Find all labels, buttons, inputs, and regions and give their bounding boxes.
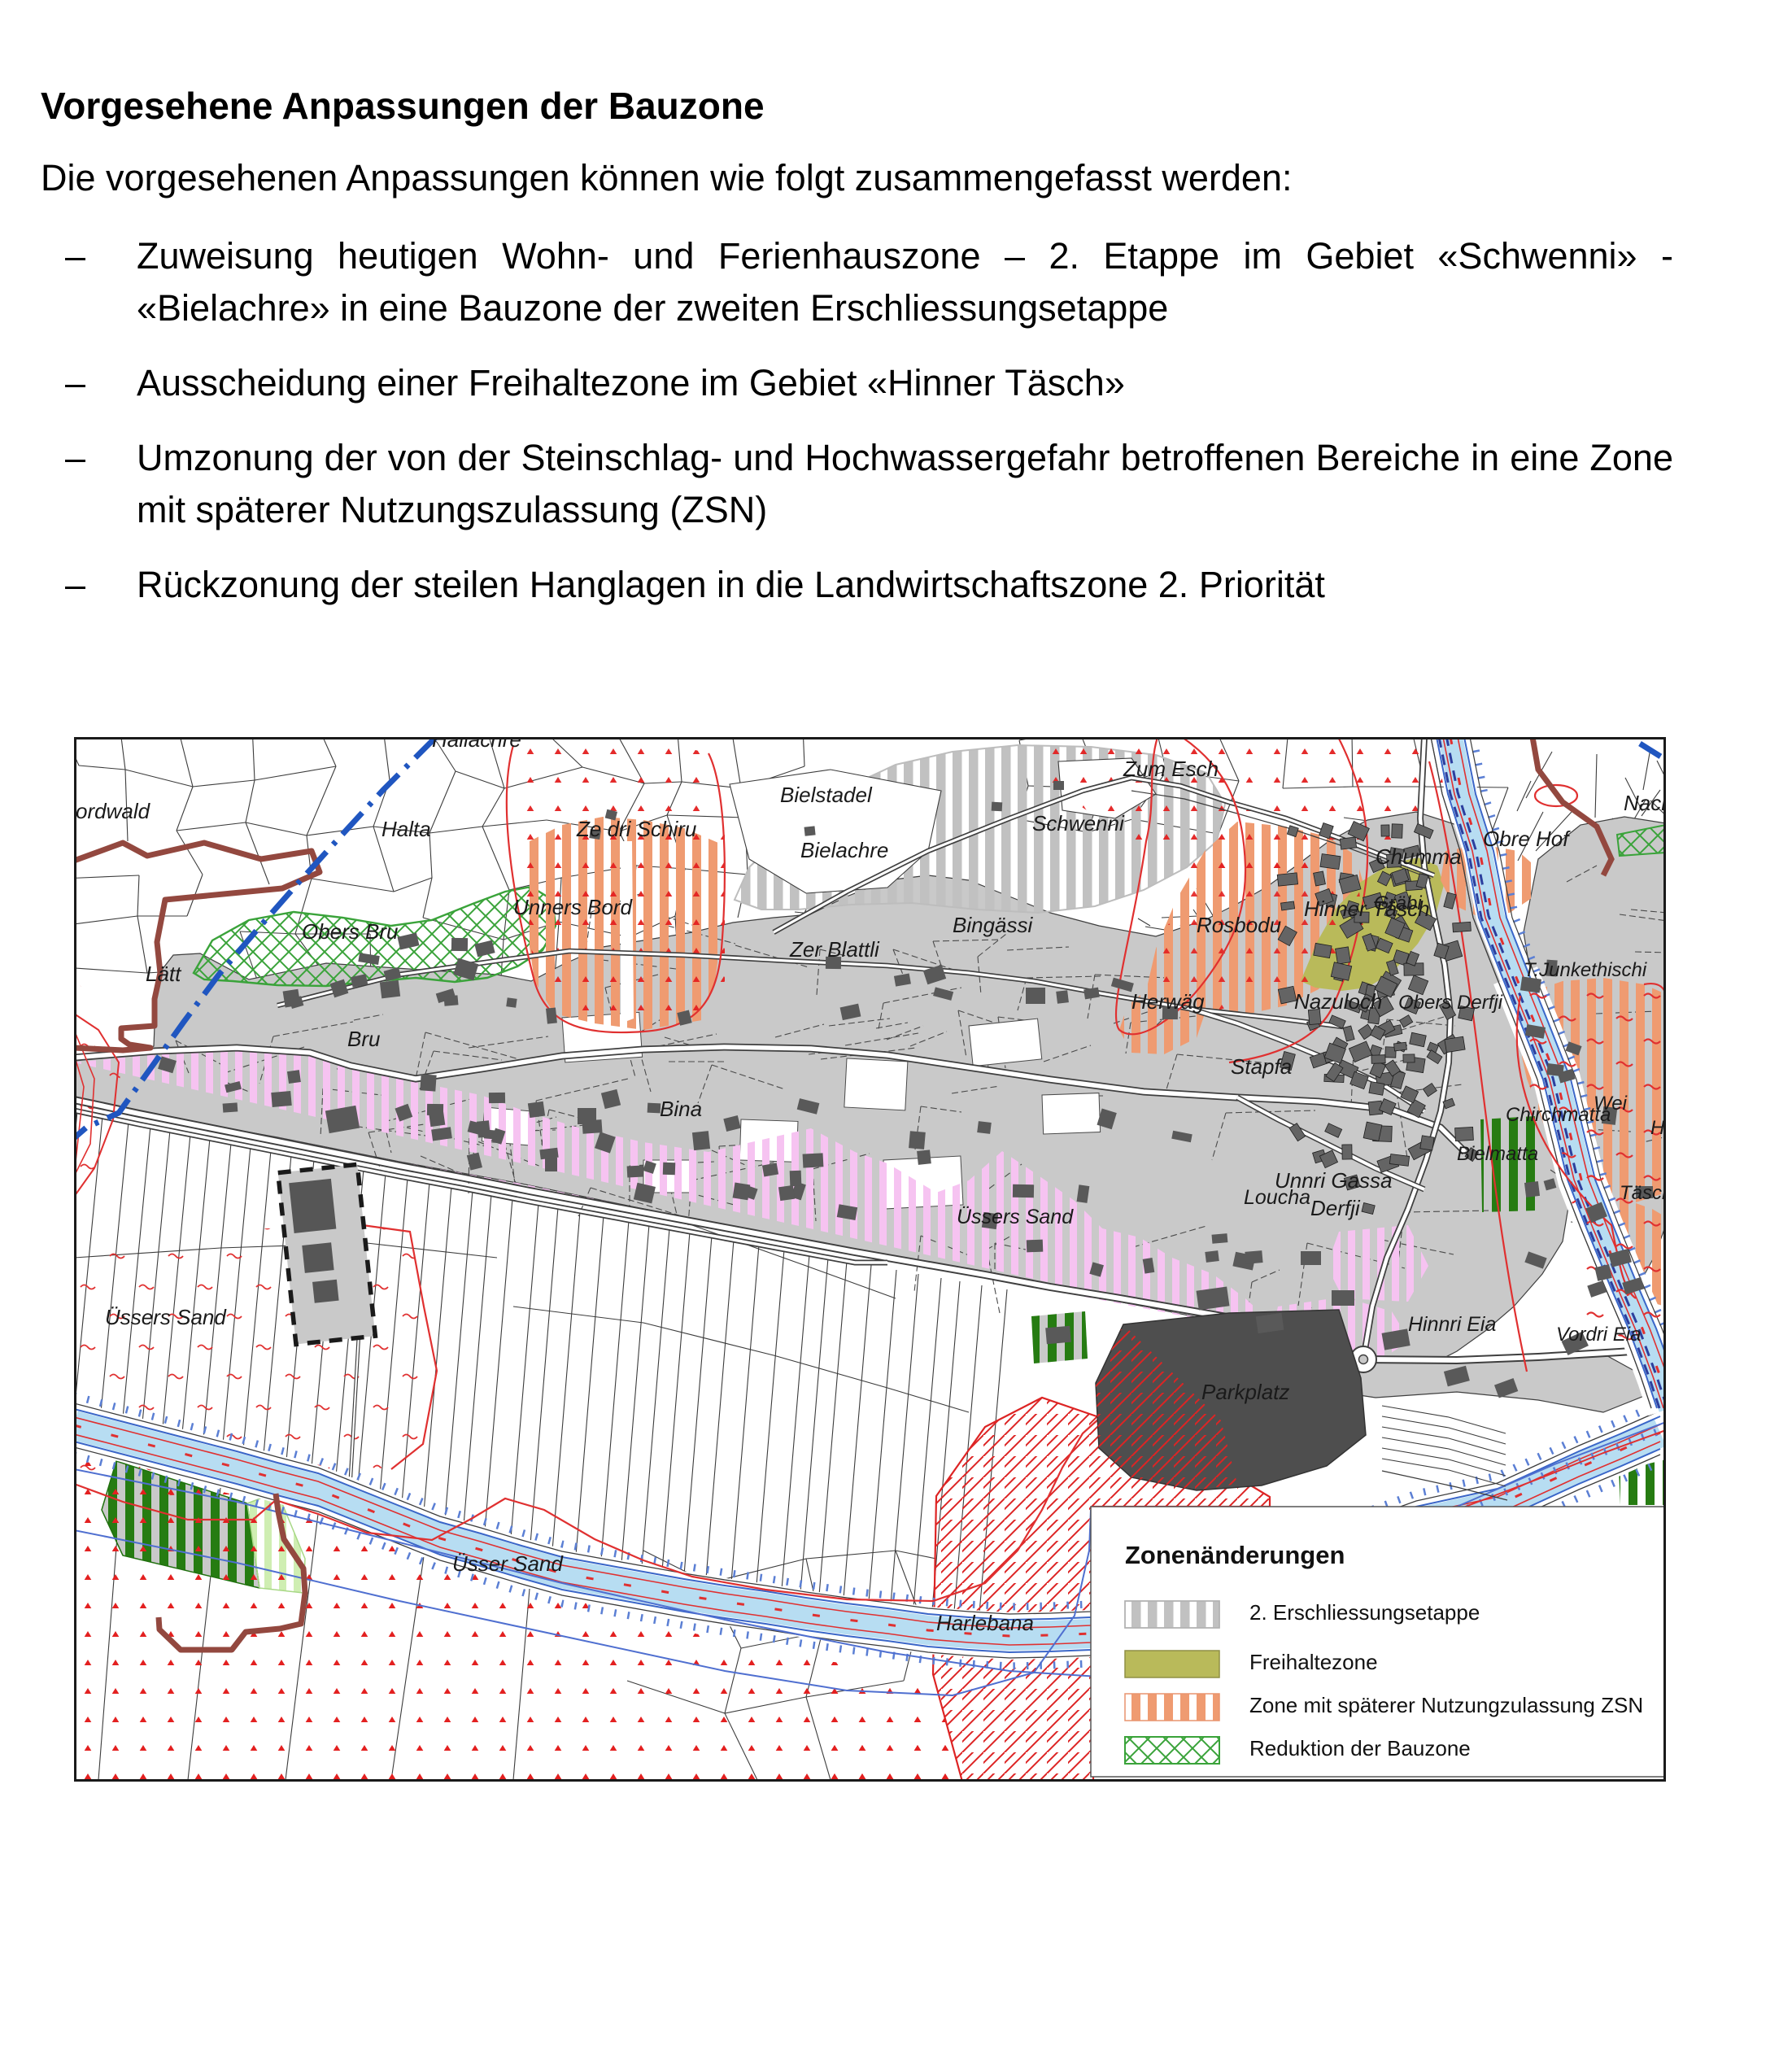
svg-text:Obers Derfji: Obers Derfji xyxy=(1398,992,1503,1014)
svg-text:Üssers Sand: Üssers Sand xyxy=(105,1305,227,1329)
svg-text:Chumma: Chumma xyxy=(1376,844,1461,869)
svg-text:Obre Hof: Obre Hof xyxy=(1483,827,1571,851)
svg-text:Freihaltezone: Freihaltezone xyxy=(1249,1650,1378,1674)
svg-text:Zer Blattli: Zer Blattli xyxy=(789,937,880,962)
svg-text:Zone mit späterer Nutzungzulas: Zone mit späterer Nutzungzulassung ZSN xyxy=(1249,1693,1643,1717)
svg-text:Vordri Eia: Vordri Eia xyxy=(1556,1324,1641,1346)
svg-text:Zum Esch: Zum Esch xyxy=(1123,757,1219,781)
svg-text:T.Junkethischi: T.Junkethischi xyxy=(1524,959,1647,981)
svg-text:Nack: Nack xyxy=(1624,791,1666,815)
svg-text:Bielachre: Bielachre xyxy=(800,838,888,862)
svg-text:Bingässi: Bingässi xyxy=(953,913,1033,937)
svg-text:Bina: Bina xyxy=(660,1097,702,1121)
svg-text:Schwenni: Schwenni xyxy=(1032,811,1125,835)
svg-text:Ze dri Schiru: Ze dri Schiru xyxy=(576,817,696,841)
svg-text:Wei: Wei xyxy=(1594,1093,1628,1115)
svg-text:2. Erschliessungsetappe: 2. Erschliessungsetappe xyxy=(1249,1600,1480,1625)
svg-text:Üsser Sand: Üsser Sand xyxy=(452,1551,564,1576)
svg-text:Zonenänderungen: Zonenänderungen xyxy=(1125,1541,1345,1569)
svg-text:Unners Bord: Unners Bord xyxy=(513,895,633,919)
svg-text:Harlebana: Harlebana xyxy=(936,1611,1034,1635)
svg-text:Halta: Halta xyxy=(382,817,431,841)
svg-text:Gräbi: Gräbi xyxy=(1374,892,1422,914)
svg-text:Nazuloch: Nazuloch xyxy=(1294,989,1382,1014)
svg-text:Üssers Sand: Üssers Sand xyxy=(957,1206,1074,1228)
svg-text:Hinnri Eia: Hinnri Eia xyxy=(1408,1313,1496,1336)
svg-text:Rosbodu: Rosbodu xyxy=(1197,913,1281,937)
svg-text:Herwäg: Herwäg xyxy=(1131,989,1205,1014)
svg-text:Lätt: Lätt xyxy=(146,962,182,986)
svg-text:Bielstadel: Bielstadel xyxy=(780,783,873,807)
svg-text:Bru: Bru xyxy=(347,1027,380,1051)
svg-text:Täsch: Täsch xyxy=(1620,1182,1666,1204)
svg-text:Loucha: Loucha xyxy=(1244,1186,1310,1209)
svg-text:ordwald: ordwald xyxy=(76,799,151,823)
svg-text:Parkplatz: Parkplatz xyxy=(1201,1380,1289,1404)
svg-text:Derfji: Derfji xyxy=(1310,1196,1361,1220)
svg-text:Obers Bru: Obers Bru xyxy=(302,919,399,944)
svg-text:Bielmatta: Bielmatta xyxy=(1457,1143,1538,1165)
svg-text:Reduktion der Bauzone: Reduktion der Bauzone xyxy=(1249,1736,1471,1760)
svg-text:Stapfa: Stapfa xyxy=(1231,1054,1292,1079)
